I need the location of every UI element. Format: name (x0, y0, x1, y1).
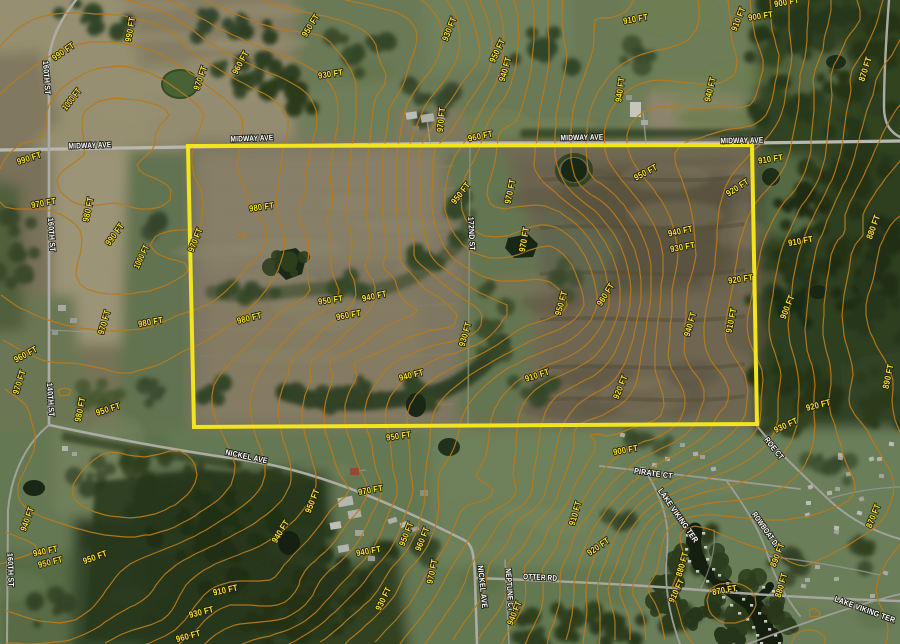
svg-text:MIDWAY AVE: MIDWAY AVE (560, 133, 604, 143)
svg-text:MIDWAY AVE: MIDWAY AVE (720, 136, 764, 146)
svg-text:MIDWAY AVE: MIDWAY AVE (68, 140, 112, 151)
svg-text:MIDWAY AVE: MIDWAY AVE (230, 133, 274, 144)
svg-text:172ND ST: 172ND ST (466, 217, 477, 251)
svg-text:160TH ST: 160TH ST (5, 553, 15, 587)
svg-text:OTTER RD: OTTER RD (523, 572, 557, 583)
